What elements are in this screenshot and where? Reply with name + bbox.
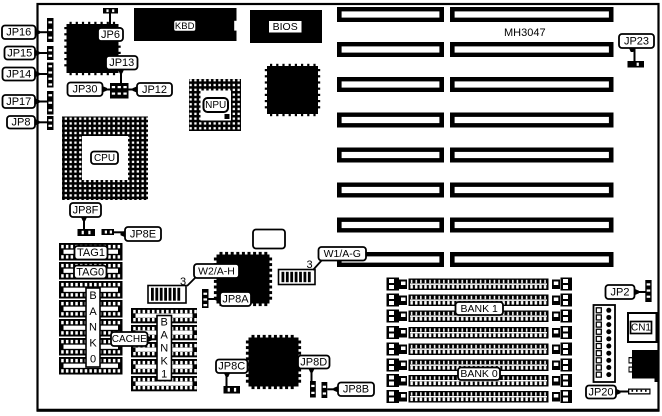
svg-text:N: N [160, 342, 168, 354]
svg-text:JP12: JP12 [142, 84, 167, 96]
svg-text:CACHE: CACHE [112, 334, 147, 345]
svg-text:K: K [161, 355, 169, 367]
svg-text:K: K [89, 338, 97, 350]
svg-text:JP30: JP30 [72, 84, 97, 96]
svg-text:JP14: JP14 [6, 68, 31, 80]
svg-text:CN1: CN1 [631, 323, 651, 334]
svg-text:TAG1: TAG1 [77, 247, 105, 259]
svg-text:A: A [89, 306, 97, 318]
svg-text:N: N [89, 322, 97, 334]
svg-text:B: B [89, 290, 96, 302]
svg-text:B: B [161, 316, 168, 328]
svg-text:TAG0: TAG0 [76, 266, 104, 278]
svg-text:JP16: JP16 [6, 27, 31, 39]
svg-text:JP8B: JP8B [343, 384, 369, 396]
svg-text:3: 3 [306, 259, 312, 271]
svg-text:JP17: JP17 [6, 96, 31, 108]
svg-text:BANK 1: BANK 1 [461, 303, 499, 315]
svg-text:3: 3 [180, 276, 186, 288]
svg-text:JP8E: JP8E [130, 228, 156, 240]
svg-text:BIOS: BIOS [273, 21, 298, 33]
svg-text:JP6: JP6 [101, 29, 120, 41]
svg-text:W2/A-H: W2/A-H [198, 265, 235, 277]
svg-text:JP8: JP8 [12, 117, 31, 129]
svg-text:JP23: JP23 [624, 35, 649, 47]
svg-text:BANK 0: BANK 0 [460, 368, 498, 380]
svg-text:JP2: JP2 [611, 286, 630, 298]
svg-text:0: 0 [90, 354, 96, 366]
svg-text:MH3047: MH3047 [504, 27, 546, 39]
svg-text:JP8C: JP8C [218, 361, 245, 373]
svg-text:JP15: JP15 [7, 47, 32, 59]
svg-text:JP8F: JP8F [73, 204, 99, 216]
svg-text:CPU: CPU [94, 153, 115, 164]
svg-text:A: A [161, 329, 169, 341]
svg-text:JP20: JP20 [588, 386, 613, 398]
svg-text:1: 1 [161, 368, 167, 380]
svg-text:KBD: KBD [175, 21, 195, 32]
svg-text:JP8D: JP8D [300, 356, 327, 368]
svg-text:JP8A: JP8A [222, 293, 249, 305]
svg-text:W1/A-G: W1/A-G [324, 248, 361, 260]
svg-text:NPU: NPU [205, 100, 226, 111]
svg-text:JP13: JP13 [109, 57, 134, 69]
